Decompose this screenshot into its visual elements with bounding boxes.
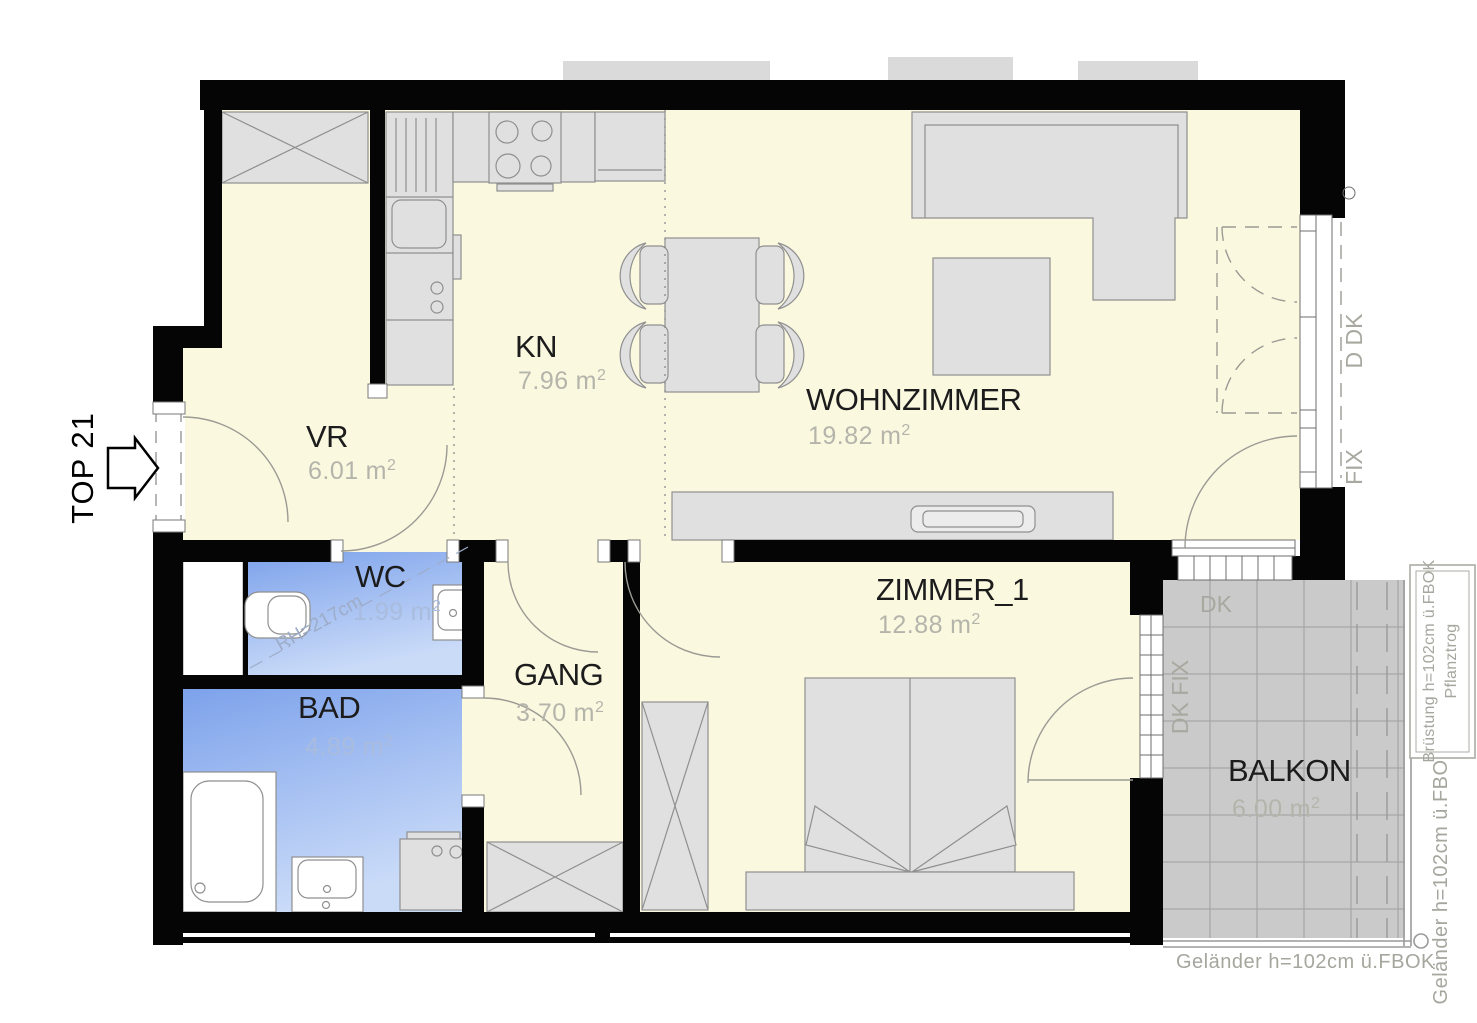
room-area-zimmer1: 12.88m2 [878,611,981,639]
room-label-vr: VR [306,419,348,454]
railing-end-icon [1414,934,1428,948]
bedroom-wardrobe [642,702,708,910]
stove [489,112,561,191]
planter-box: Brüstung h=102cm ü.FBOK Pflanztrog [1410,559,1475,762]
coffee-table [933,258,1050,375]
room-area-kn: 7.96m2 [518,367,606,395]
room-label-bad: BAD [298,690,360,725]
entrance-marker: TOP 21 [65,412,158,524]
room-area-gang: 3.70m2 [516,699,604,727]
bathtub [183,772,276,912]
counter-handle [453,235,461,279]
window-note-d-dk: D DK [1341,313,1367,369]
room-label-zimmer1: ZIMMER_1 [876,572,1029,607]
kitchen-sink [392,200,446,248]
room-area-vr: 6.01m2 [308,457,396,485]
tv [911,506,1035,532]
floorplan-drawing: VR 6.01m2 KN 7.96m2 WOHNZIMMER 19.82m2 W… [0,0,1477,1023]
room-area-bad: 4.89m2 [305,733,393,761]
room-label-wohnzimmer: WOHNZIMMER [806,382,1021,417]
adjacent-structures [563,57,1198,80]
fridge [595,112,665,181]
railing-note-side: Geländer h=102cm ü.FBOK [1430,745,1452,1004]
washing-machine [400,832,470,910]
room-label-balkon: BALKON [1228,753,1351,788]
room-label-kn: KN [515,329,557,364]
tv-sideboard [672,492,1113,540]
room-area-wohnzimmer: 19.82m2 [808,422,911,450]
balcony-window-note: DK FIX [1167,660,1193,734]
room-area-wc: 1.99m2 [353,598,441,626]
vr-wardrobe [222,112,368,183]
entrance-arrow-icon [108,438,158,498]
room-area-balkon: 6.00m2 [1232,795,1320,823]
gang-closet [487,842,623,912]
planter-note-2: Pflanztrog [1443,623,1460,698]
window-note-fix: FIX [1341,449,1367,485]
balcony-dk-note: DK [1200,591,1233,617]
floorplan-page: VR 6.01m2 KN 7.96m2 WOHNZIMMER 19.82m2 W… [0,0,1477,1023]
shaft [183,552,248,677]
bathroom-sink [292,857,363,912]
headboard [746,872,1074,910]
railing-note-bottom: Geländer h=102cm ü.FBOK [1176,951,1435,973]
window-bedroom-balcony [1140,615,1163,778]
room-label-gang: GANG [514,657,603,692]
room-label-wc: WC [355,559,406,594]
window-balcony-top [1172,540,1295,580]
planter-note-1: Brüstung h=102cm ü.FBOK [1421,559,1438,762]
window-livingroom-right [1300,215,1332,488]
dining-table [665,238,759,392]
unit-title: TOP 21 [65,412,100,524]
